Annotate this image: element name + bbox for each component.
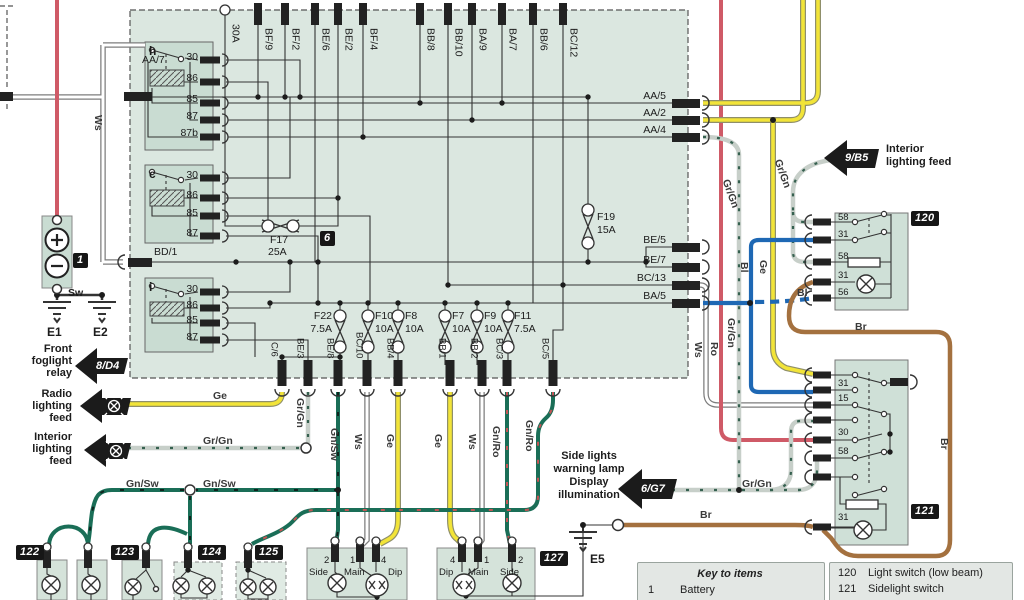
- wire-label-gnro-col2: Gn/Ro: [523, 420, 534, 452]
- connector-aa4: AA/4: [621, 125, 666, 137]
- feed-sidelight-line3: Display: [544, 476, 634, 488]
- fuse-f19-name: F19: [597, 212, 615, 224]
- hl-left-label-2: Dip: [388, 568, 402, 578]
- key-item-121-num: 121: [838, 583, 856, 595]
- connector-be5: BE/5: [621, 235, 666, 247]
- connector-be3: BE/3: [294, 338, 304, 359]
- feed-radio-line2: lighting: [10, 400, 72, 412]
- relay-c-pin30: 30: [172, 170, 198, 182]
- relay-h-pin86: 86: [172, 73, 198, 85]
- wire-label-gnsw-col: Gn/Sw: [328, 428, 339, 461]
- connector-top-0: BF/9: [262, 28, 274, 50]
- hl-right-pin-0: 4: [450, 556, 455, 566]
- fuse-f11-rating: 7.5A: [514, 324, 536, 336]
- relay-i-pin86: 86: [172, 300, 198, 312]
- key-item-121-name: Sidelight switch: [868, 583, 944, 595]
- connector-bb1: BB/1: [436, 338, 446, 359]
- sw121-pin31a: 31: [838, 379, 849, 389]
- hl-left-pin-1: 1: [350, 556, 355, 566]
- item-badge-127: 127: [540, 551, 568, 566]
- inlet-30a-connector: [220, 5, 230, 15]
- connector-top-4: BF/4: [367, 28, 379, 50]
- ground-e5: E5: [590, 553, 605, 566]
- feed-foglight-line1: Front: [10, 343, 72, 355]
- item-badge-6: 6: [320, 231, 335, 246]
- relay-h-pin87: 87: [172, 111, 198, 123]
- connector-ba5: BA/5: [621, 291, 666, 303]
- inlet-30a-label: 30A: [229, 24, 241, 43]
- fuse-f10-rating: 10A: [375, 324, 394, 336]
- hl-right-pin-1: 1: [484, 556, 489, 566]
- key-item-120-name: Light switch (low beam): [868, 567, 983, 579]
- relay-i-id: i: [149, 281, 152, 294]
- battery-sw-label: Sw: [68, 288, 83, 300]
- relay-i-pin85: 85: [172, 315, 198, 327]
- fuse-f19-rating: 15A: [597, 225, 616, 237]
- fuse-f11-name: F11: [514, 311, 531, 323]
- item-badge-1: 1: [73, 253, 88, 268]
- sw120-pin58a: 58: [838, 213, 849, 223]
- connector-top-10: BC/12: [567, 28, 579, 57]
- wire-label-ge-col2: Ge: [432, 434, 443, 448]
- hl-left-pin-0: 2: [324, 556, 329, 566]
- item-badge-123: 123: [111, 545, 139, 560]
- wire-label-ws-left: Ws: [92, 115, 103, 131]
- wire-label-grgn-right: Gr/Gn: [725, 318, 736, 348]
- key-item-1-num: 1: [648, 584, 654, 596]
- feed-sidelight-line4: illumination: [544, 489, 634, 501]
- wire-label-grgn-col: Gr/Gn: [294, 398, 305, 428]
- connector-bb2: BB/2: [468, 338, 478, 359]
- relay-c-pin87: 87: [172, 228, 198, 240]
- relay-c-pin86: 86: [172, 190, 198, 202]
- fuse-f8-name: F8: [405, 311, 417, 323]
- wire-label-ws-col1: Ws: [352, 434, 363, 450]
- wire-label-ge-vert: Ge: [757, 260, 768, 274]
- feed-radio-line1: Radio: [10, 388, 72, 400]
- key-title: Key to items: [637, 568, 823, 580]
- relay-h-pin30: 30: [172, 52, 198, 64]
- wire-label-br-bottom: Br: [700, 510, 712, 521]
- feed-interior-right-line2: lighting feed: [886, 156, 951, 168]
- connector-aa5: AA/5: [621, 91, 666, 103]
- connector-bb4: BB/4: [384, 338, 394, 359]
- feed-interior-left-line3: feed: [10, 455, 72, 467]
- hl-left-label-1: Main: [344, 568, 365, 578]
- hl-right-label-1: Main: [468, 568, 489, 578]
- feed-interior-left-line1: Interior: [10, 431, 72, 443]
- item-badge-125: 125: [255, 545, 283, 560]
- wire-label-ro-right: Ro: [708, 342, 719, 356]
- relay-h-pin85: 85: [172, 94, 198, 106]
- arrow-radio: [80, 389, 131, 423]
- relay-h-pin87b: 87b: [172, 128, 198, 140]
- connector-bc10: BC/10: [353, 332, 363, 358]
- connector-be7: BE/7: [621, 255, 666, 267]
- item-badge-120: 120: [911, 211, 939, 226]
- fuse-f8-rating: 10A: [405, 324, 424, 336]
- wire-label-grgn-6g7: Gr/Gn: [742, 479, 772, 490]
- feed-sidelight-ref: 6/G7: [641, 483, 665, 495]
- arrow-interior: [84, 434, 131, 467]
- diagram-canvas: [0, 0, 1024, 600]
- fuse-f9-name: F9: [484, 311, 496, 323]
- connector-top-8: BA/7: [506, 28, 518, 51]
- connector-top-7: BA/9: [476, 28, 488, 51]
- wire-label-br-top: Br: [855, 322, 867, 333]
- connector-aa2: AA/2: [621, 108, 666, 120]
- item-badge-122: 122: [16, 545, 44, 560]
- fuse-f22-name: F22: [304, 311, 332, 323]
- fuse-f17-name: F17: [270, 235, 288, 247]
- sw120-pin31a: 31: [838, 230, 849, 240]
- hl-right-label-2: Side: [500, 568, 519, 578]
- ground-e1: E1: [47, 326, 62, 339]
- connector-top-1: BF/2: [289, 28, 301, 50]
- sw120-pin58b: 58: [838, 252, 849, 262]
- feed-radio-line3: feed: [10, 412, 72, 424]
- wire-label-bl-vert: Bl: [738, 262, 749, 273]
- connector-top-3: BE/2: [342, 28, 354, 51]
- relay-c-id: c: [149, 168, 156, 181]
- hl-left-label-0: Side: [309, 568, 328, 578]
- relay-c-pin85: 85: [172, 208, 198, 220]
- wire-label-ws-col2: Ws: [466, 434, 477, 450]
- fuse-f7-name: F7: [452, 311, 464, 323]
- wire-label-gnsw-2: Gn/Sw: [203, 479, 236, 490]
- item-badge-121: 121: [911, 504, 939, 519]
- wire-label-gnro-col1: Gn/Ro: [490, 426, 501, 458]
- connector-bc13: BC/13: [621, 273, 666, 285]
- fuse-f9-rating: 10A: [484, 324, 503, 336]
- sw121-pin15: 15: [838, 394, 849, 404]
- key-item-1-name: Battery: [680, 584, 715, 596]
- connector-bd1: BD/1: [154, 247, 177, 259]
- wire-label-bl-horiz: Bl: [797, 288, 808, 299]
- feed-foglight-line2: foglight: [10, 355, 72, 367]
- feed-interior-right-ref: 9/B5: [845, 152, 868, 164]
- wire-label-br-vert: Br: [938, 438, 949, 450]
- hl-left-pin-2: 4: [381, 556, 386, 566]
- sw120-pin56: 56: [838, 288, 849, 298]
- wire-label-ws-right: Ws: [692, 342, 703, 358]
- connector-top-9: BB/6: [537, 28, 549, 51]
- sw120-pin31b: 31: [838, 271, 849, 281]
- fuse-f22-rating: 7.5A: [304, 324, 332, 336]
- sw121-pin31b: 31: [838, 513, 849, 523]
- connector-top-6: BB/10: [452, 28, 464, 57]
- connector-c6: C/6: [268, 342, 278, 357]
- key-item-120-num: 120: [838, 567, 856, 579]
- connector-top-5: BB/8: [424, 28, 436, 51]
- relay-i-pin87: 87: [172, 332, 198, 344]
- wire-label-ge-radio: Ge: [213, 391, 227, 402]
- hl-right-label-0: Dip: [439, 568, 453, 578]
- wire-label-grgn-interior: Gr/Gn: [203, 436, 233, 447]
- relay-h-id: h: [149, 45, 156, 58]
- hl-right-pin-2: 2: [518, 556, 523, 566]
- fuse-f17-rating: 25A: [268, 247, 287, 259]
- feed-interior-left-line2: lighting: [10, 443, 72, 455]
- sw121-pin30: 30: [838, 428, 849, 438]
- connector-be8: BE/8: [324, 338, 334, 359]
- wiring-diagram: AA/7 30A BF/9 BF/2 BE/6 BE/2 BF/4 BB/8 B…: [0, 0, 1024, 600]
- item-badge-124: 124: [198, 545, 226, 560]
- connector-bc5: BC/5: [539, 338, 549, 359]
- wire-label-gnsw-1: Gn/Sw: [126, 479, 159, 490]
- fuse-f7-rating: 10A: [452, 324, 471, 336]
- feed-foglight-ref: 8/D4: [96, 360, 119, 372]
- feed-sidelight-line2: warning lamp: [544, 463, 634, 475]
- wire-label-ge-col1: Ge: [384, 434, 395, 448]
- connector-bc3: BC/3: [493, 338, 503, 359]
- sw121-pin58: 58: [838, 447, 849, 457]
- relay-i-pin30: 30: [172, 284, 198, 296]
- feed-interior-right-line1: Interior: [886, 143, 924, 155]
- connector-top-2: BE/6: [319, 28, 331, 51]
- feed-foglight-line3: relay: [10, 367, 72, 379]
- fuse-f10-name: F10: [375, 311, 393, 323]
- ground-e2: E2: [93, 326, 108, 339]
- feed-sidelight-line1: Side lights: [544, 450, 634, 462]
